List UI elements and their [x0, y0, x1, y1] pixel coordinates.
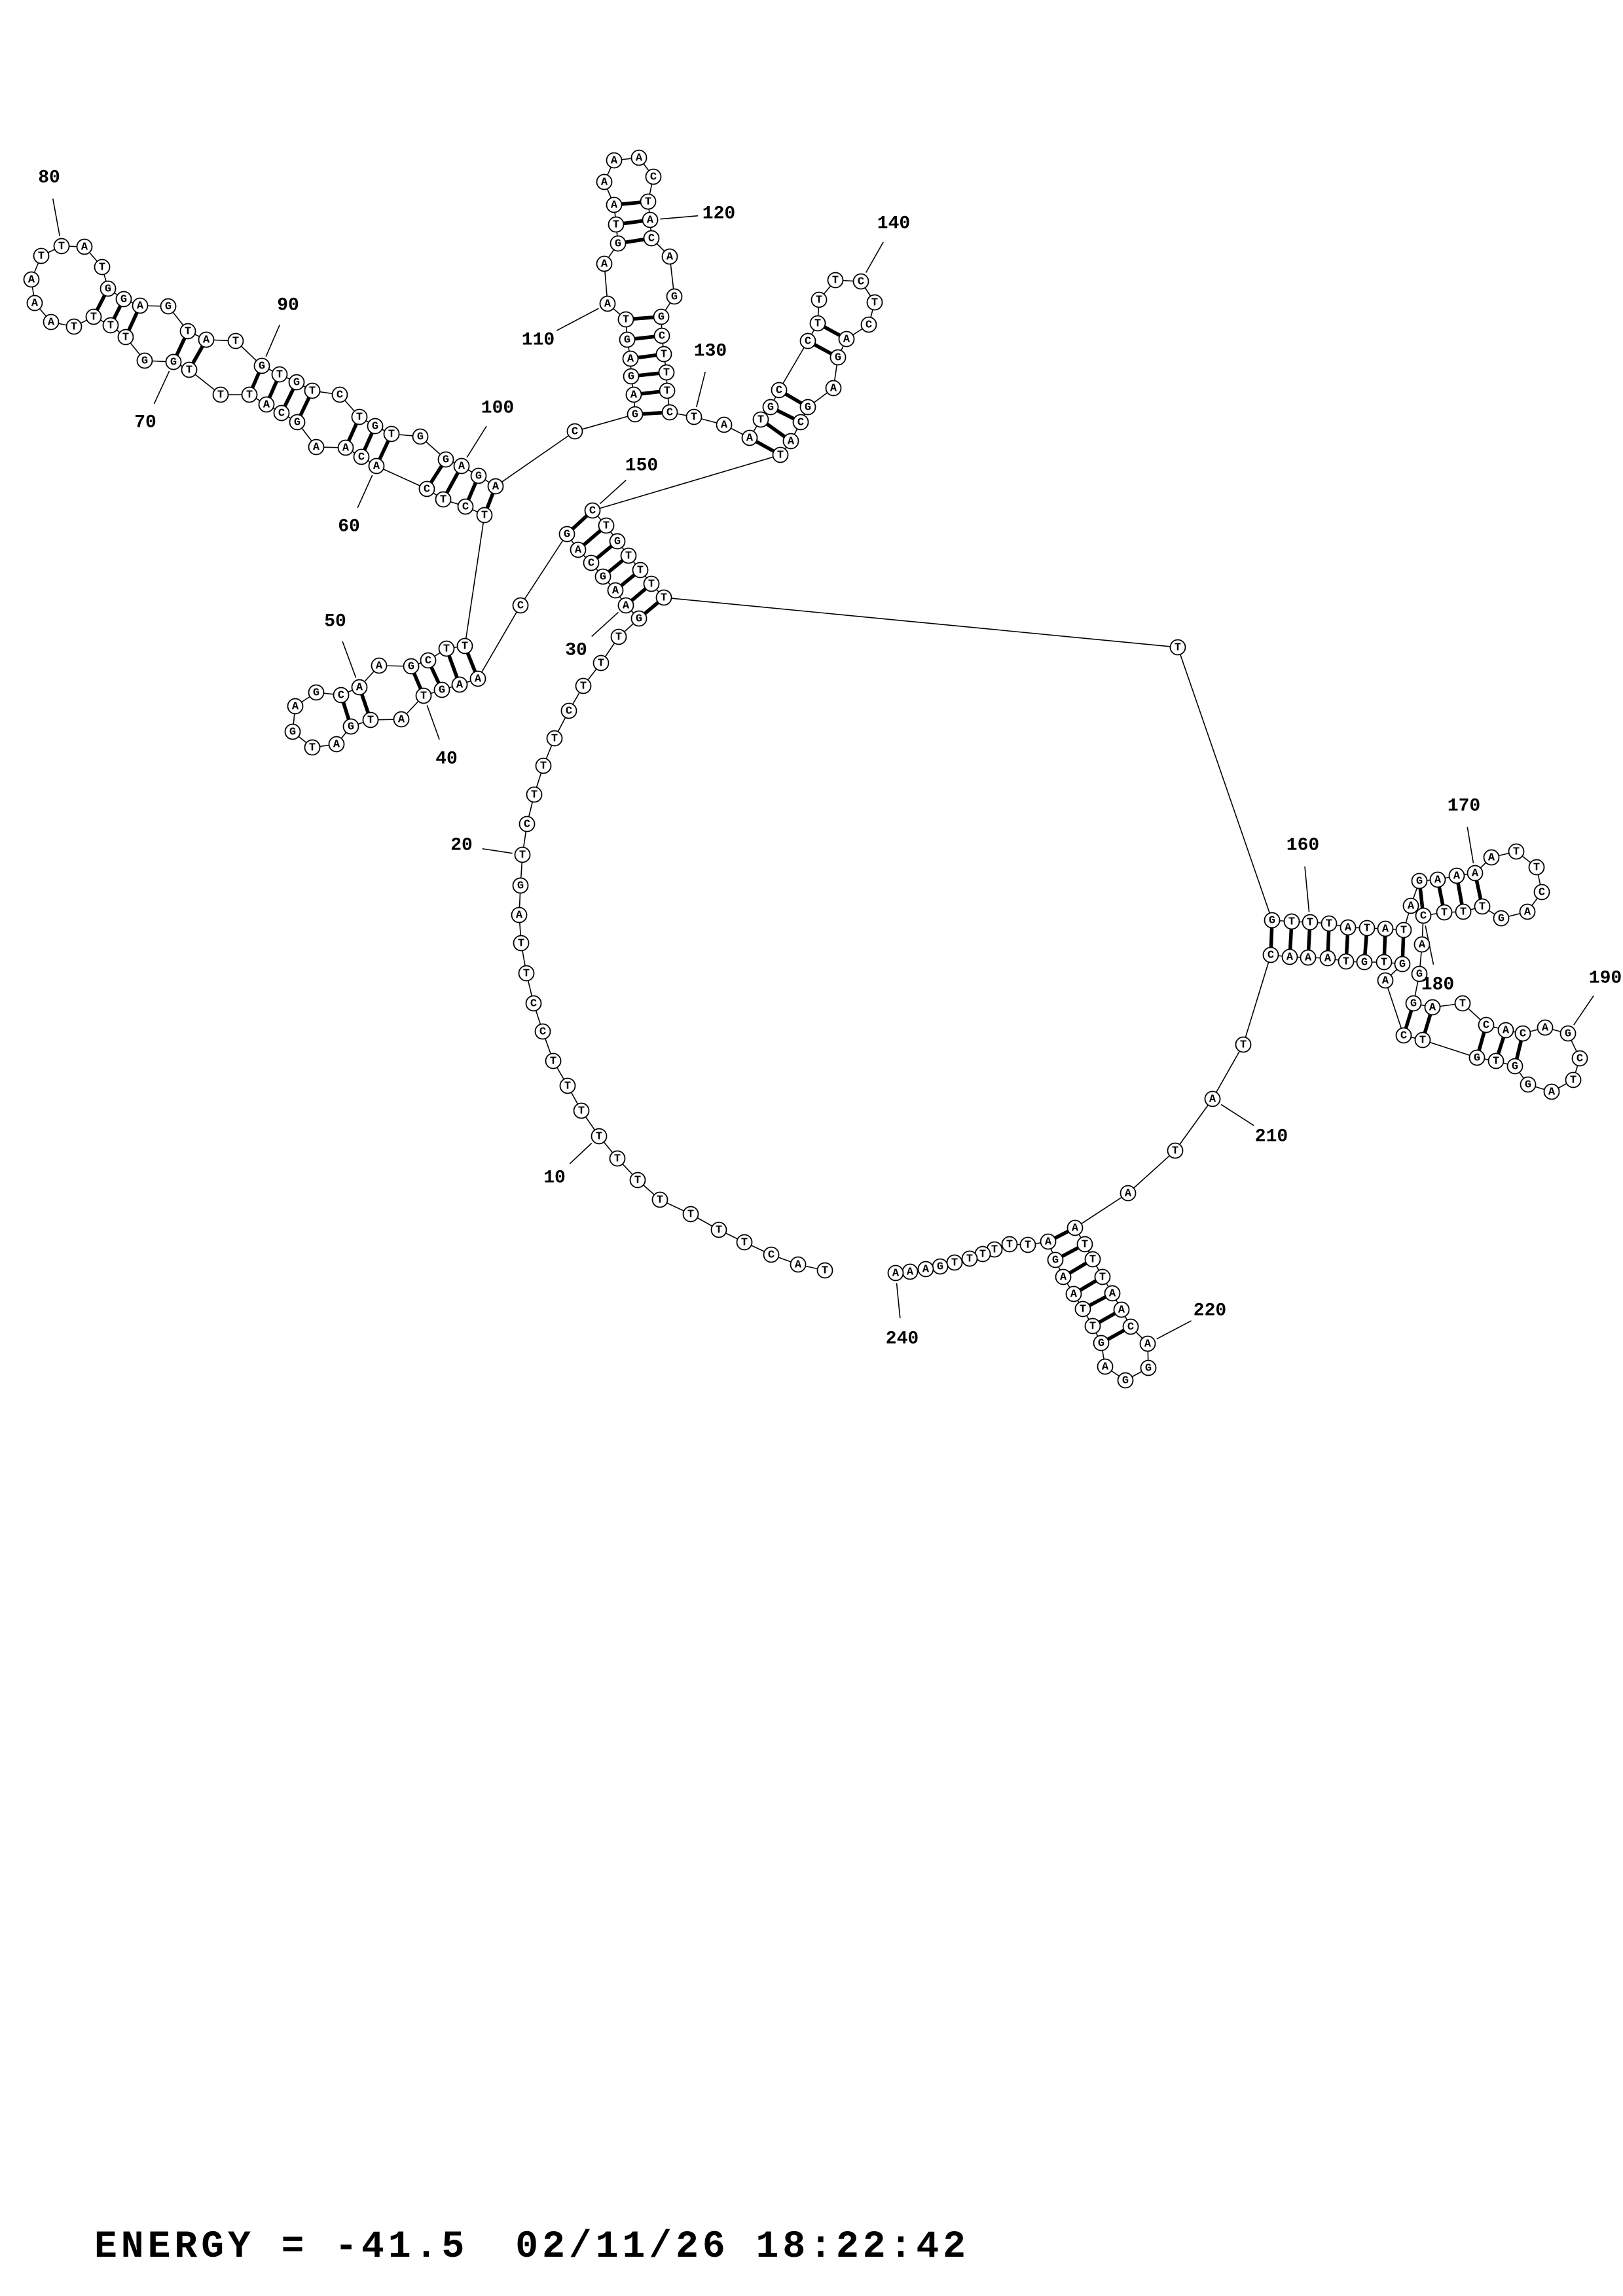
backbone-segment	[1178, 647, 1272, 920]
nucleotide-base: A	[721, 420, 728, 432]
nucleotide-base: G	[1269, 915, 1275, 927]
nucleotide-base: A	[1305, 952, 1312, 965]
nucleotide-base: A	[843, 334, 850, 346]
nucleotide-base: T	[598, 658, 604, 670]
nucleotide-base: A	[1542, 1022, 1549, 1035]
nucleotide-base: C	[589, 505, 596, 518]
label-leader	[697, 372, 705, 407]
label-leader	[660, 216, 698, 219]
position-label: 180	[1421, 975, 1454, 996]
nucleotide-base: C	[517, 600, 524, 613]
nucleotide-base: T	[1441, 907, 1448, 920]
backbone-segment	[1243, 955, 1271, 1045]
nucleotide-base: A	[1419, 939, 1426, 952]
nucleotide-base: C	[659, 331, 665, 343]
nucleotide-base: T	[979, 1249, 986, 1261]
nucleotide-base: A	[627, 353, 634, 366]
nucleotide-base: G	[1361, 957, 1368, 969]
nucleotide-base: T	[615, 632, 622, 644]
label-leader	[427, 706, 439, 740]
nucleotide-base: T	[1025, 1240, 1031, 1252]
nucleotide-base: T	[614, 1153, 621, 1166]
nucleotide-base: A	[516, 910, 523, 922]
nucleotide-base: G	[259, 361, 265, 373]
nucleotide-base: T	[1089, 1321, 1096, 1333]
nucleotide-base: C	[1539, 887, 1545, 899]
nucleotide-base: C	[776, 385, 782, 397]
backbone-segment	[376, 466, 427, 489]
position-label: 20	[450, 836, 473, 856]
nucleotide-base: T	[1240, 1039, 1247, 1052]
nucleotide-base: G	[1525, 1079, 1531, 1092]
nucleotide-base: T	[625, 550, 632, 563]
nucleotide-base: G	[1052, 1255, 1059, 1267]
nucleotide-base: G	[294, 417, 301, 429]
plot-timestamp: 02/11/26 18:22:42	[515, 2226, 970, 2269]
nucleotide-base: C	[530, 998, 537, 1011]
nucleotide-base: A	[373, 461, 380, 473]
nucleotide-base: A	[342, 442, 350, 455]
nucleotide-base: A	[356, 682, 363, 694]
position-label: 190	[1589, 969, 1622, 989]
backbone-segment	[1128, 1151, 1175, 1193]
backbone-segment	[478, 605, 520, 679]
position-label: 170	[1448, 797, 1480, 817]
nucleotide-base: G	[141, 355, 148, 368]
nucleotide-base: T	[217, 389, 224, 402]
position-label: 210	[1255, 1127, 1288, 1147]
nucleotide-base: A	[611, 200, 618, 212]
nucleotide-base: A	[666, 251, 674, 264]
nucleotide-base: C	[539, 1026, 546, 1039]
nucleotide-base: A	[611, 155, 618, 168]
backbone-segment	[1175, 1099, 1213, 1151]
nucleotide-base: T	[871, 297, 878, 310]
base-pair-layer	[94, 202, 1523, 1343]
nucleotide-base: A	[31, 298, 39, 310]
backbone-segment	[465, 515, 484, 646]
label-leader	[600, 480, 626, 503]
nucleotide-base: T	[1364, 923, 1370, 935]
nucleotide-base: G	[1122, 1375, 1129, 1388]
nucleotide-base: C	[337, 389, 343, 402]
nucleotide-base: T	[531, 789, 538, 802]
nucleotide-base: A	[1429, 1002, 1436, 1014]
nucleotide-base: A	[907, 1266, 914, 1279]
position-label: 110	[522, 331, 555, 351]
nucleotide-base: C	[1267, 950, 1274, 962]
nucleotide-base: T	[186, 365, 192, 377]
position-label: 60	[338, 517, 360, 537]
position-label: 160	[1286, 836, 1319, 856]
nucleotide-base: T	[38, 251, 45, 263]
nucleotide-base: T	[1400, 925, 1407, 937]
nucleotide-base: T	[1099, 1272, 1106, 1284]
label-leader	[1157, 1321, 1192, 1339]
nucleotide-base: G	[564, 529, 570, 541]
nucleotide-base: A	[1102, 1361, 1109, 1374]
backbone-segment	[575, 414, 635, 431]
nucleotide-base: G	[408, 661, 414, 673]
label-leader	[154, 371, 169, 404]
nucleotide-base: G	[1498, 913, 1504, 925]
nucleotide-base: G	[615, 238, 621, 251]
nucleotide-base: T	[71, 321, 77, 334]
nucleotide-base: T	[246, 389, 253, 402]
nucleotide-base: G	[417, 431, 424, 444]
nucleotide-base: A	[647, 215, 654, 227]
nucleotide-base: G	[443, 454, 449, 467]
nucleotide-base: C	[1127, 1321, 1134, 1334]
nucleotide-base: T	[1172, 1145, 1178, 1158]
nucleotide-base: C	[1483, 1020, 1489, 1032]
nucleotide-base: A	[612, 585, 619, 598]
nucleotide-base: T	[832, 275, 839, 287]
nucleotide-base: T	[519, 850, 526, 862]
nucleotide-base: T	[443, 643, 450, 656]
label-leader	[556, 308, 598, 331]
nucleotide-base: G	[658, 312, 665, 324]
nucleotide-base: G	[937, 1261, 943, 1274]
position-label: 30	[565, 641, 587, 661]
nucleotide-base: A	[1125, 1188, 1132, 1200]
nucleotide-base: A	[636, 152, 643, 165]
nucleotide-base: T	[966, 1253, 973, 1266]
nucleotide-base: T	[1082, 1239, 1088, 1251]
label-leader	[467, 426, 486, 457]
nucleotide-base: T	[58, 241, 65, 253]
nucleotide-base: G	[120, 294, 127, 306]
nucleotide-base: A	[1345, 922, 1352, 935]
nucleotide-base: T	[661, 592, 667, 605]
nucleotide-base: A	[830, 383, 837, 395]
nucleotide-base: G	[767, 402, 774, 414]
label-leader	[570, 1143, 591, 1164]
nucleotide-base: A	[1524, 906, 1531, 919]
nucleotide-base: T	[122, 332, 129, 344]
nucleotide-base: A	[333, 739, 340, 751]
nucleotide-base: A	[1453, 870, 1461, 883]
nucleotide-base: C	[858, 276, 864, 289]
nucleotide-base: G	[1098, 1338, 1104, 1350]
nucleotide-base: C	[572, 426, 578, 439]
nucleotide-base: T	[664, 386, 670, 398]
nucleotide-base: G	[289, 726, 296, 739]
nucleotide-base: A	[1070, 1289, 1078, 1301]
nucleotide-base: C	[648, 233, 655, 245]
nucleotide-base: T	[663, 367, 670, 380]
nucleotide-base: A	[1382, 975, 1389, 988]
nucleotide-base: T	[232, 336, 239, 348]
nucleotide-base: T	[1459, 998, 1466, 1011]
nucleotide-base: A	[48, 317, 55, 329]
nucleotide-base: T	[551, 733, 558, 745]
nucleotide-base: T	[578, 1105, 585, 1118]
nucleotide-base: A	[1324, 953, 1332, 965]
nucleotide-base: C	[358, 452, 365, 464]
nucleotide-base: T	[388, 429, 395, 441]
nucleotide-base: T	[367, 715, 374, 727]
nucleotide-base: T	[185, 326, 191, 338]
nucleotide-base: A	[1060, 1272, 1067, 1284]
nucleotide-base: T	[540, 761, 547, 773]
nucleotide-base: T	[1089, 1254, 1096, 1266]
nucleotide-base: C	[278, 408, 285, 420]
nucleotide-base: C	[1400, 1030, 1407, 1043]
nucleotide-base: T	[1006, 1239, 1013, 1251]
nucleotide-base: A	[1286, 952, 1294, 964]
nucleotide-base: T	[648, 579, 655, 591]
nucleotide-base: G	[475, 471, 482, 483]
nucleotide-base: T	[1493, 1056, 1499, 1068]
position-label: 50	[324, 612, 346, 632]
label-leader	[342, 641, 356, 677]
backbone-segment	[1385, 980, 1404, 1035]
nucleotide-base: G	[628, 371, 634, 384]
nucleotide-base: T	[1175, 642, 1181, 655]
nucleotide-base: A	[1045, 1236, 1052, 1249]
position-label: 130	[694, 342, 727, 362]
nucleotide-base: T	[440, 494, 447, 507]
nucleotide-base: C	[462, 501, 469, 514]
nucleotide-base: T	[276, 369, 283, 382]
nucleotide-base: A	[1209, 1094, 1216, 1106]
nucleotide-base: G	[313, 687, 319, 700]
nucleotide-base: C	[424, 484, 430, 496]
nucleotide-base: T	[462, 641, 468, 653]
nucleotide-base: T	[1570, 1075, 1577, 1087]
nucleotide-base: G	[636, 613, 642, 626]
energy-footer: ENERGY = -41.502/11/26 18:22:42	[94, 2226, 970, 2269]
nucleotide-base: A	[28, 274, 35, 287]
nucleotide-base: T	[1307, 917, 1313, 929]
label-leader	[483, 849, 513, 853]
nucleotide-base: G	[1399, 959, 1406, 971]
position-label: 100	[481, 399, 514, 419]
nucleotide-base: A	[263, 399, 270, 412]
nucleotide-base: T	[1533, 862, 1540, 874]
nucleotide-base: G	[805, 402, 811, 414]
nucleotide-base: T	[1479, 901, 1486, 914]
label-leader	[1467, 827, 1473, 863]
nucleotide-base: T	[634, 1175, 641, 1187]
position-label: 40	[435, 749, 458, 770]
nucleotide-base: T	[777, 450, 784, 462]
nucleotide-base: A	[1109, 1288, 1116, 1300]
nucleotide-base: T	[1288, 916, 1295, 929]
nucleotide-base: C	[524, 819, 530, 831]
position-label: 90	[277, 296, 299, 316]
backbone-segment	[779, 341, 808, 390]
backbone-segment	[496, 431, 575, 486]
nucleotide-base: A	[1072, 1223, 1079, 1235]
nucleotide-base: G	[1145, 1363, 1152, 1375]
nucleotide-base: A	[458, 461, 465, 473]
position-label: 10	[543, 1168, 566, 1189]
nucleotide-base: A	[1503, 1025, 1510, 1037]
nucleotide-base: A	[1488, 852, 1495, 865]
nucleotide-base: A	[630, 389, 638, 402]
nucleotide-base: T	[596, 1131, 602, 1143]
nucleotide-base: G	[439, 685, 445, 697]
nucleotide-base: C	[338, 690, 344, 702]
nucleotide-base: T	[822, 1265, 828, 1278]
nucleotide-base: C	[768, 1249, 775, 1262]
nucleotide-base: T	[1343, 956, 1349, 969]
position-label: 70	[134, 413, 156, 433]
nucleotide-base: A	[922, 1264, 930, 1276]
energy-value: ENERGY = -41.5	[94, 2226, 468, 2269]
position-label: 140	[877, 214, 910, 234]
nucleotide-base: T	[603, 520, 610, 533]
nucleotide-base: T	[523, 968, 530, 980]
position-label-layer: 1020304050607080901001101201301401501601…	[38, 168, 1622, 1350]
nucleotide-base: T	[816, 295, 822, 307]
position-label: 150	[625, 456, 658, 476]
nucleotide-base: G	[1474, 1052, 1480, 1065]
nucleotide-base: A	[292, 701, 299, 713]
nucleotide-base: G	[1416, 876, 1423, 888]
nucleotide-base: C	[1577, 1053, 1583, 1066]
label-leader	[53, 198, 60, 236]
nucleotide-base: A	[1144, 1338, 1152, 1351]
nucleotide-base: G	[170, 357, 177, 369]
nucleotide-base: G	[1512, 1061, 1518, 1073]
nucleotide-base: T	[1326, 918, 1332, 931]
nucleotide-base: T	[613, 219, 619, 232]
nucleotide-base: A	[575, 545, 582, 557]
nucleotide-base: G	[600, 571, 606, 584]
label-leader	[866, 242, 884, 273]
nucleotide-base: A	[892, 1268, 900, 1280]
backbone-segment	[1423, 1040, 1477, 1058]
nucleotide-base: T	[564, 1081, 571, 1093]
backbone-segment	[1075, 1193, 1128, 1228]
nucleotide-base: C	[805, 336, 811, 348]
nucleotide-base: T	[481, 510, 488, 522]
nucleotide-base: C	[588, 558, 594, 570]
nucleotide-base: C	[1520, 1028, 1526, 1041]
position-label: 240	[886, 1329, 919, 1350]
nucleotide-base: C	[666, 407, 673, 420]
label-leader	[357, 475, 372, 508]
nucleotide-base: C	[797, 417, 804, 429]
nucleotide-base: A	[1118, 1304, 1125, 1317]
nucleotide-base: C	[1420, 910, 1427, 923]
nucleotide-base: A	[601, 259, 608, 271]
nucleotide-base: T	[1419, 1035, 1426, 1047]
nucleotide-base: A	[795, 1259, 802, 1272]
nucleotide-base: T	[309, 386, 316, 398]
dna-secondary-structure-plot: TACTTTTTTTTTTCCTTAGTCTTTCTTTGAAGCAGCAAGT…	[0, 0, 1623, 2296]
nucleotide-base: G	[671, 291, 678, 304]
label-leader	[897, 1283, 900, 1318]
nucleotide-base: G	[835, 352, 841, 365]
backbone-segment	[1213, 1045, 1243, 1099]
nucleotide-base: A	[1434, 874, 1442, 887]
nucleotide-base: A	[313, 442, 320, 454]
nucleotide-base: A	[623, 600, 630, 613]
nucleotide-base: T	[757, 414, 764, 427]
nucleotide-base: G	[632, 409, 638, 422]
nucleotide-base: G	[614, 536, 621, 548]
nucleotide-base: T	[1460, 906, 1467, 919]
nucleotide-base: T	[420, 691, 427, 703]
nucleotide-base: C	[866, 319, 872, 332]
nucleotide-base: G	[517, 880, 524, 893]
nucleotide-base: T	[580, 681, 587, 693]
nucleotide-base: G	[293, 377, 300, 389]
nucleotide-base: A	[1408, 901, 1415, 913]
label-leader	[1305, 867, 1309, 912]
nucleotide-base: A	[376, 660, 383, 673]
nucleotide-base: A	[1548, 1086, 1556, 1099]
nucleotide-base: T	[99, 262, 105, 274]
nucleotide-base: T	[90, 312, 97, 324]
nucleotide-letter-layer: TACTTTTTTTTTTCCTTAGTCTTTCTTTGAAGCAGCAAGT…	[28, 152, 1583, 1388]
nucleotide-base: A	[203, 334, 210, 347]
nucleotide-base: T	[687, 1209, 694, 1221]
position-label: 120	[702, 204, 735, 224]
nucleotide-base: A	[604, 298, 611, 311]
nucleotide-base: T	[716, 1225, 722, 1237]
nucleotide-base: T	[951, 1257, 958, 1270]
nucleotide-base: C	[566, 706, 572, 718]
label-leader	[266, 325, 280, 356]
nucleotide-base: G	[1565, 1028, 1571, 1041]
label-leader	[1221, 1104, 1254, 1125]
nucleotide-base: T	[657, 1194, 663, 1207]
nucleotide-base: G	[165, 301, 172, 314]
nucleotide-base: T	[550, 1056, 556, 1068]
nucleotide-base: A	[788, 436, 795, 448]
nucleotide-base: A	[137, 300, 144, 313]
nucleotide-base: G	[105, 283, 111, 296]
backbone-segment	[664, 598, 1178, 647]
nucleotide-base: G	[624, 334, 630, 347]
nucleotide-base: T	[107, 320, 114, 332]
nucleotide-base: T	[1080, 1304, 1086, 1316]
backbone-segment	[593, 455, 780, 511]
backbone-segment	[520, 534, 567, 605]
nucleotide-base: T	[623, 314, 629, 327]
nucleotide-base: G	[1410, 998, 1417, 1011]
nucleotide-base: T	[691, 412, 697, 424]
nucleotide-base: A	[1472, 868, 1479, 880]
label-leader	[1574, 996, 1594, 1025]
nucleotide-base: A	[492, 481, 500, 493]
nucleotide-base: G	[348, 721, 354, 734]
nucleotide-base: A	[1382, 924, 1389, 936]
nucleotide-base: T	[1381, 957, 1387, 969]
nucleotide-base: A	[81, 242, 88, 254]
position-label: 220	[1194, 1301, 1226, 1321]
nucleotide-base: T	[741, 1237, 748, 1249]
position-label: 80	[38, 168, 60, 188]
nucleotide-base: T	[309, 742, 316, 755]
nucleotide-base: A	[601, 177, 608, 189]
nucleotide-base: T	[356, 412, 363, 424]
nucleotide-base: A	[398, 714, 405, 726]
nucleotide-base: T	[1513, 846, 1520, 859]
nucleotide-base: T	[518, 938, 524, 950]
nucleotide-base: T	[814, 318, 821, 331]
nucleotide-base: A	[456, 679, 464, 692]
nucleotide-base: T	[645, 196, 651, 209]
nucleotide-base: T	[637, 565, 644, 577]
nucleotide-base: G	[372, 421, 378, 433]
nucleotide-base: T	[991, 1244, 998, 1257]
